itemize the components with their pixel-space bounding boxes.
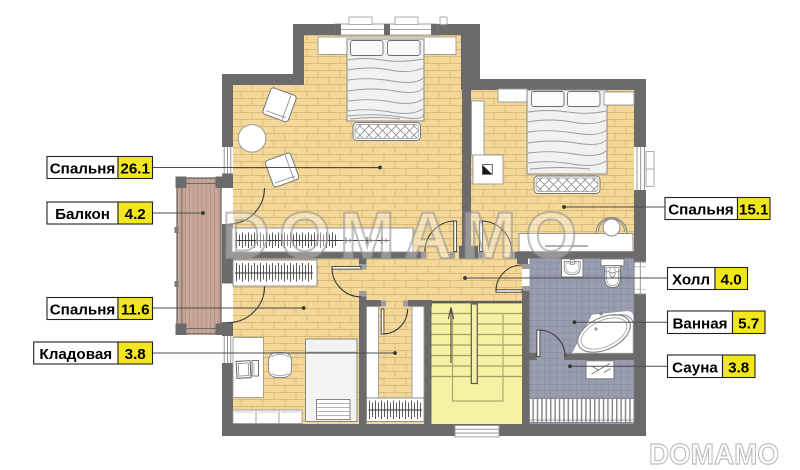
svg-text:Кладовая: Кладовая xyxy=(39,346,112,363)
svg-text:26.1: 26.1 xyxy=(120,161,150,178)
svg-text:4.0: 4.0 xyxy=(721,272,742,289)
svg-text:3.8: 3.8 xyxy=(728,360,749,377)
svg-text:Спальня: Спальня xyxy=(668,202,734,219)
svg-text:Сауна: Сауна xyxy=(672,360,718,377)
svg-text:Балкон: Балкон xyxy=(55,206,110,223)
svg-text:5.7: 5.7 xyxy=(738,316,759,333)
svg-text:Спальня: Спальня xyxy=(50,161,116,178)
svg-text:4.2: 4.2 xyxy=(125,206,146,223)
svg-text:DOMAMO: DOMAMO xyxy=(222,198,586,272)
svg-text:3.8: 3.8 xyxy=(125,346,146,363)
svg-text:Спальня: Спальня xyxy=(50,302,116,319)
svg-text:Холл: Холл xyxy=(672,272,710,289)
svg-text:DOMAMO: DOMAMO xyxy=(649,439,779,470)
svg-text:Ванная: Ванная xyxy=(672,316,727,333)
svg-text:11.6: 11.6 xyxy=(121,302,150,319)
svg-text:15.1: 15.1 xyxy=(739,202,769,219)
